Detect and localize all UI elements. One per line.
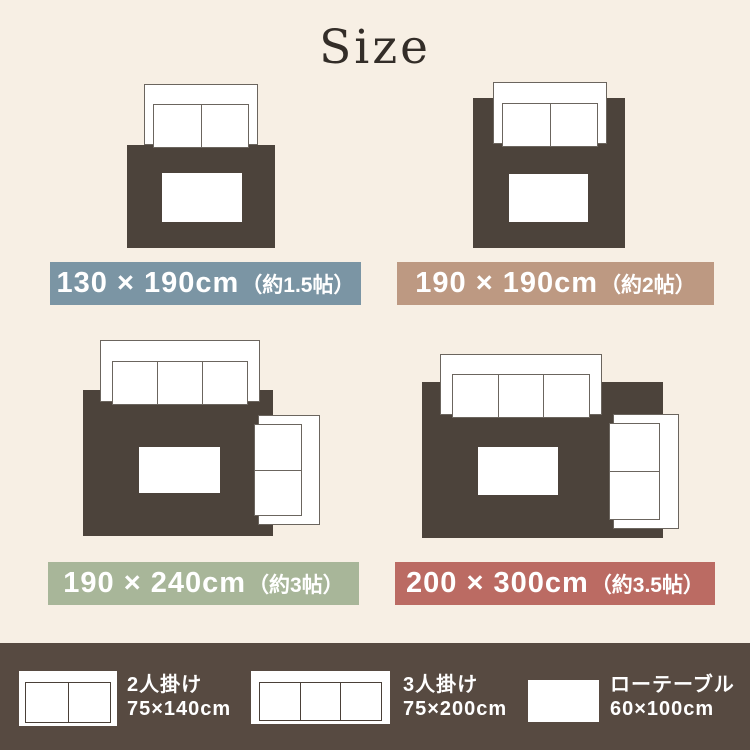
legend-item-name: 3人掛け (403, 673, 507, 697)
size-tatami-note: （約2帖） (600, 269, 696, 299)
sofa-2seat-icon (493, 82, 607, 144)
legend-label-2seater: 2人掛け 75×140cm (127, 673, 231, 721)
sofa-seat (502, 103, 598, 147)
sofa-2seat-side-icon (613, 414, 679, 529)
sofa-seat (452, 374, 590, 417)
low-table-icon (162, 173, 242, 222)
size-label-130x190: 130 × 190cm （約1.5帖） (50, 262, 361, 305)
legend-label-low-table: ローテーブル 60×100cm (610, 673, 735, 721)
sofa-seat (254, 424, 302, 517)
legend-item-size: 75×200cm (403, 697, 507, 721)
size-label-190x240: 190 × 240cm （約3帖） (48, 562, 359, 605)
legend-item-name: ローテーブル (610, 673, 735, 697)
legend-sofa-3seat-icon (251, 671, 390, 724)
page-title: Size (0, 20, 750, 75)
legend-bar: 2人掛け 75×140cm 3人掛け 75×200cm ローテーブル 60×10… (0, 643, 750, 750)
legend-item-size: 60×100cm (610, 697, 735, 721)
low-table-icon (509, 174, 588, 222)
sofa-seat (609, 423, 660, 520)
legend-item-name: 2人掛け (127, 673, 231, 697)
sofa-seat (153, 104, 249, 147)
sofa-3seat-icon (440, 354, 602, 415)
low-table-icon (139, 447, 220, 493)
sofa-seat (259, 682, 381, 722)
legend-sofa-2seat-icon (19, 671, 117, 726)
size-dimensions: 130 × 190cm (57, 267, 240, 300)
size-label-190x190: 190 × 190cm （約2帖） (397, 262, 714, 305)
legend-low-table-icon (528, 680, 599, 722)
size-label-200x300: 200 × 300cm （約3.5帖） (395, 562, 715, 605)
size-dimensions: 190 × 190cm (415, 267, 598, 300)
sofa-seat (112, 361, 248, 405)
legend-label-3seater: 3人掛け 75×200cm (403, 673, 507, 721)
size-tatami-note: （約3帖） (248, 569, 344, 599)
legend-item-size: 75×140cm (127, 697, 231, 721)
low-table-icon (478, 447, 558, 495)
sofa-seat (25, 682, 111, 723)
rug-size-chart: Size 130 × 190cm （約1.5帖） 190 × 190cm （約2… (0, 0, 750, 750)
size-tatami-note: （約3.5帖） (591, 569, 704, 599)
size-dimensions: 200 × 300cm (406, 567, 589, 600)
size-dimensions: 190 × 240cm (63, 567, 246, 600)
size-tatami-note: （約1.5帖） (241, 269, 354, 299)
sofa-2seat-side-icon (258, 415, 320, 525)
sofa-2seat-icon (144, 84, 258, 145)
sofa-3seat-icon (100, 340, 260, 402)
